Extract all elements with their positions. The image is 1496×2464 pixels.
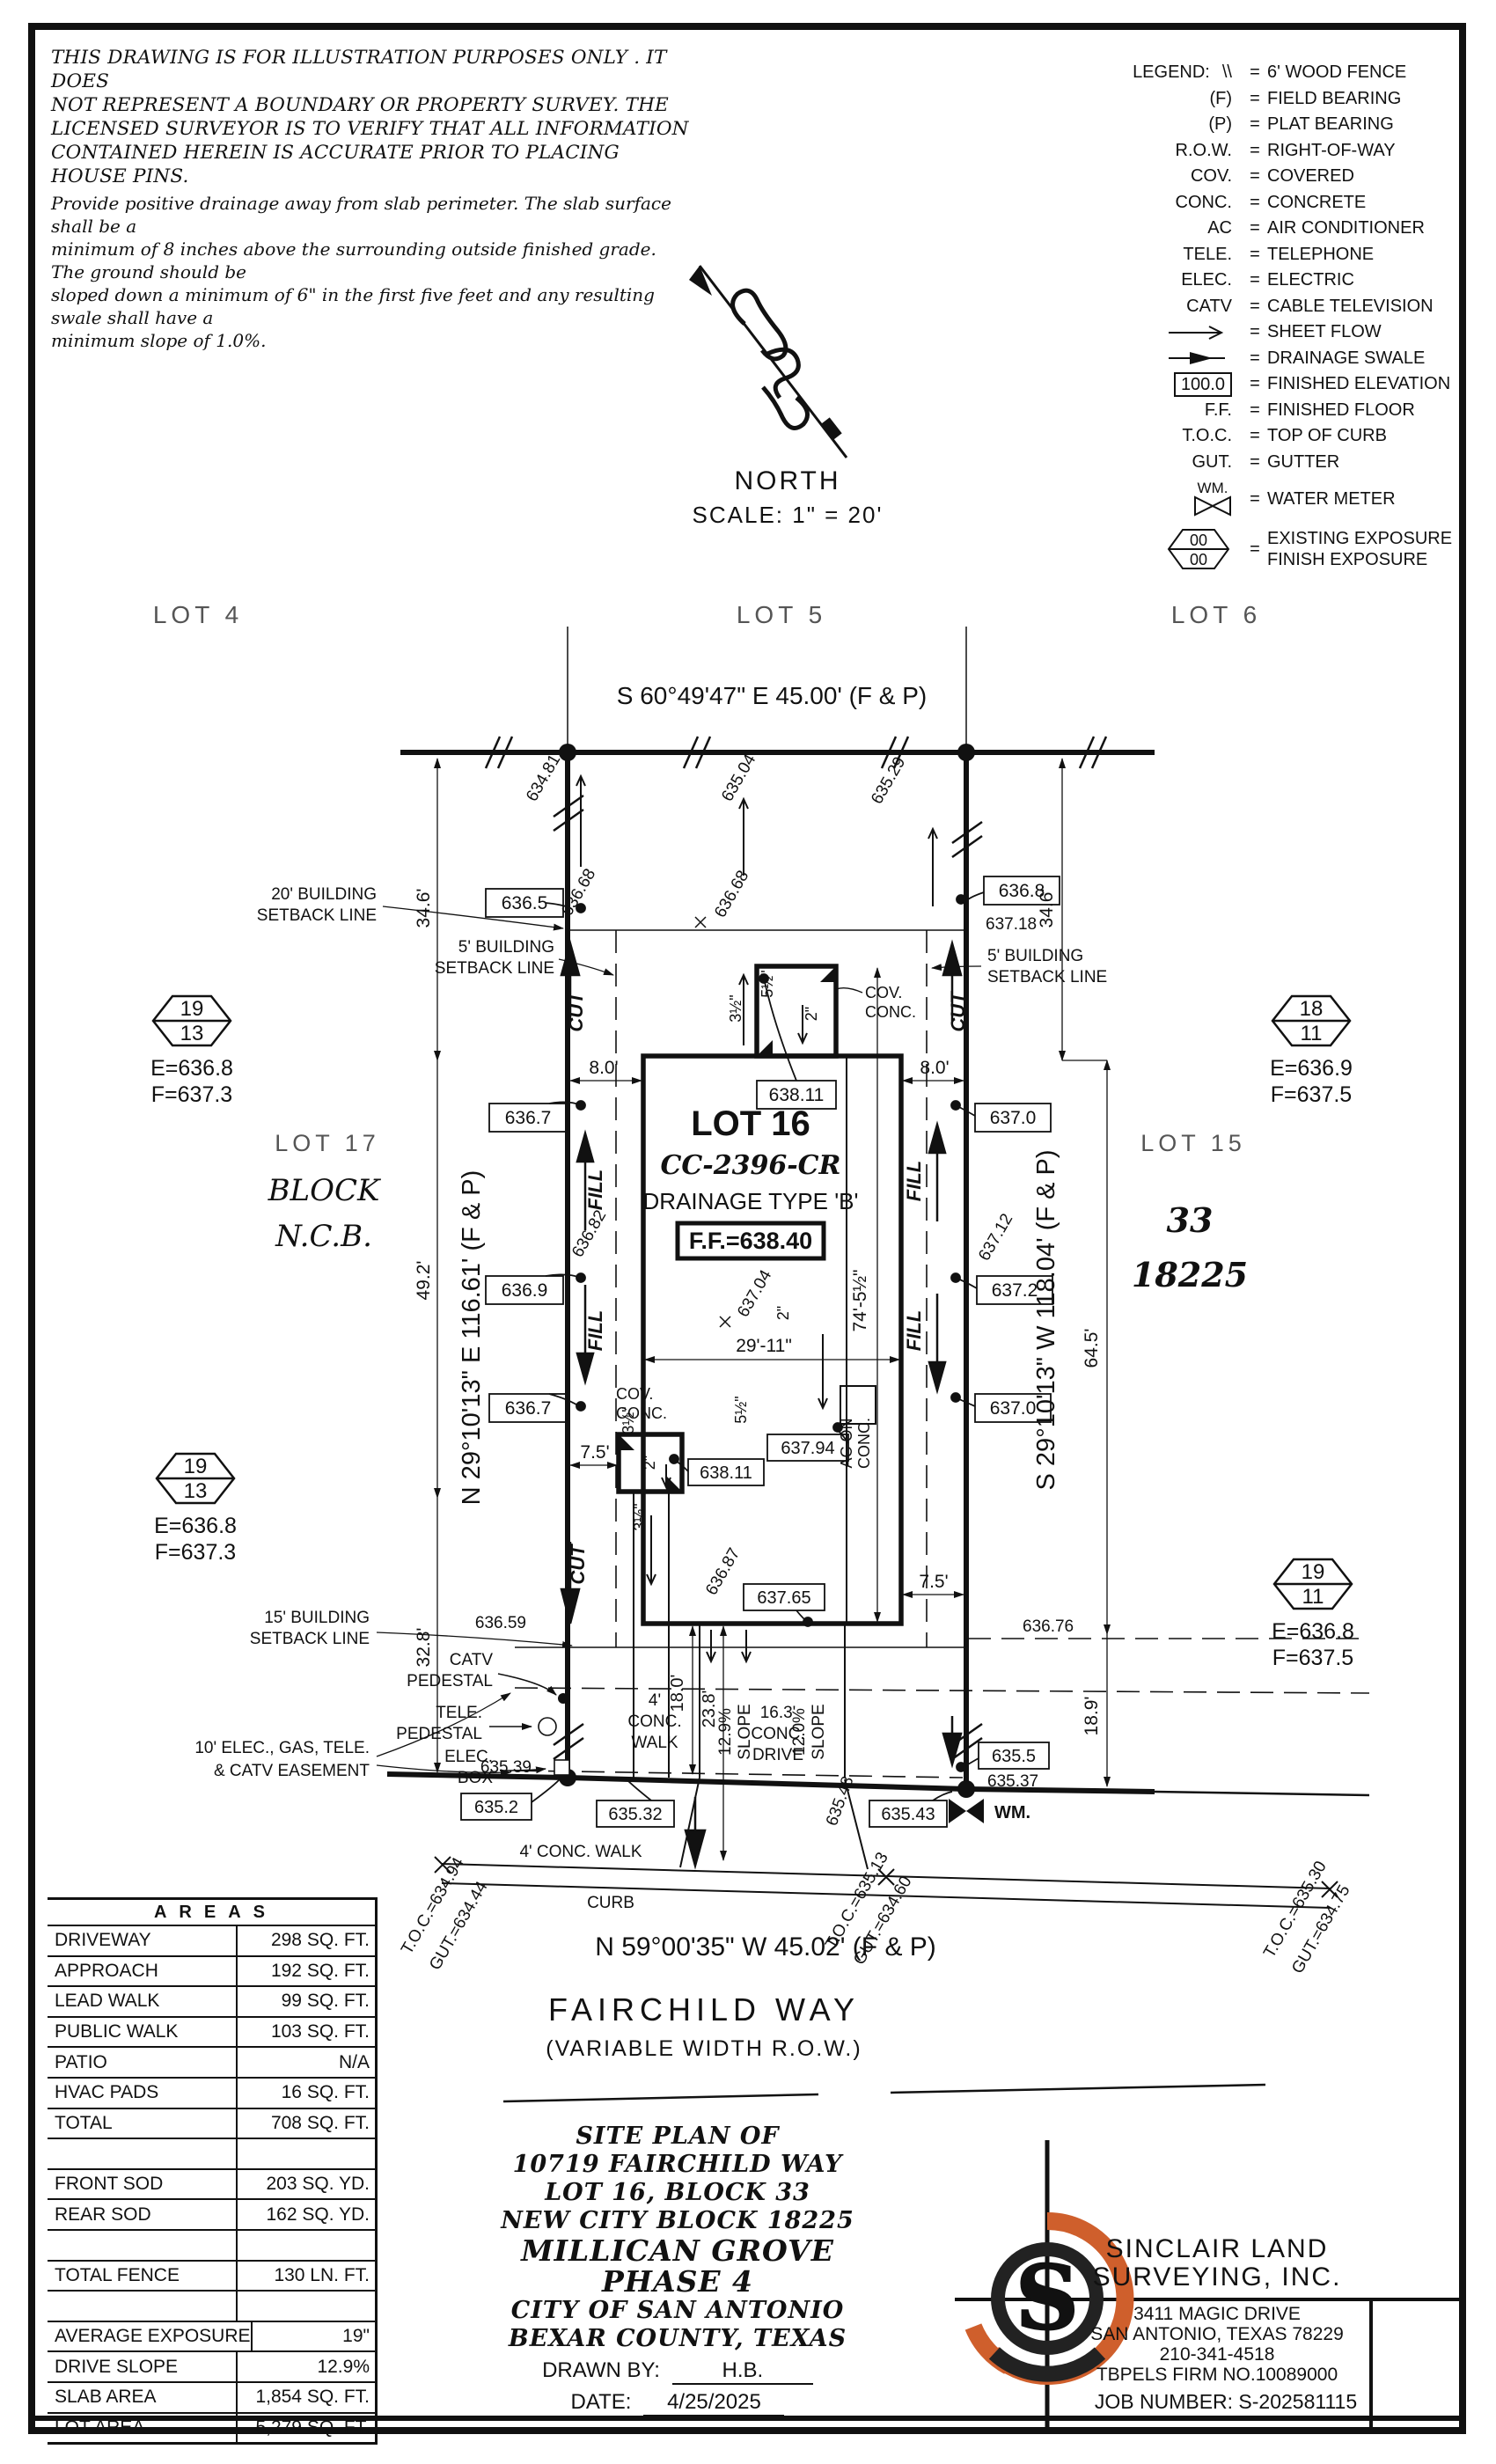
spot-box-635-5: 635.5: [992, 1747, 1036, 1766]
legend-symbol: ELEC.: [1116, 270, 1243, 290]
setback5-left-2: SETBACK LINE: [435, 959, 554, 978]
area-label: APPROACH: [48, 1961, 236, 1982]
equals: =: [1243, 374, 1267, 394]
exposure-nw-top: 19: [180, 997, 204, 1021]
porch-3half: 3½": [727, 994, 744, 1022]
area-value: 203 SQ. YD.: [236, 2170, 375, 2199]
dim-side-right-8: 8.0': [920, 1058, 949, 1078]
legend-desc: FINISH EXPOSURE: [1267, 549, 1464, 570]
slope-word-1: SLOPE: [736, 1704, 754, 1759]
drainage-swale-icon: [1167, 350, 1232, 366]
exposure-sw-f: F=637.3: [155, 1540, 236, 1565]
area-label: SLAB AREA: [48, 2387, 236, 2408]
dim-west-34-6: 34.6': [414, 889, 434, 928]
ff-elevation: F.F.=638.40: [689, 1228, 812, 1254]
area-value: 99 SQ. FT.: [236, 1987, 375, 2016]
legend-symbol: CATV: [1116, 297, 1243, 317]
company-address-2: SAN ANTONIO, TEXAS 78229: [1063, 2324, 1371, 2344]
area-label: DRIVEWAY: [48, 1930, 236, 1951]
equals: =: [1243, 452, 1267, 473]
legend-desc: AIR CONDITIONER: [1267, 218, 1464, 238]
wm-label: WM.: [994, 1803, 1030, 1822]
legend-desc: COVERED: [1267, 166, 1464, 187]
porch-5half: 5½": [759, 970, 776, 997]
area-value: 298 SQ. FT.: [236, 1926, 375, 1955]
legend-simple-rows-2: F.F.=FINISHED FLOORT.O.C.=TOP OF CURBGUT…: [1116, 398, 1464, 476]
areas-row: DRIVEWAY 298 SQ. FT.: [48, 1926, 375, 1957]
lot17-label: LOT 17: [275, 1130, 380, 1156]
legend-row: (F)=FIELD BEARING: [1116, 86, 1464, 113]
exposure-se-top: 19: [1302, 1560, 1325, 1584]
date-label: DATE:: [571, 2390, 632, 2416]
spot-635-04: 635.04: [718, 751, 759, 804]
legend-desc: WATER METER: [1267, 489, 1464, 510]
areas-row: DRIVE SLOPE 12.9%: [48, 2352, 375, 2383]
setback20-label-2: SETBACK LINE: [257, 906, 377, 925]
area-value: 19": [251, 2322, 375, 2351]
exposure-bottom-value: 00: [1190, 551, 1207, 568]
area-label: TOTAL FENCE: [48, 2265, 236, 2286]
exposure-ne-bottom: 11: [1301, 1022, 1323, 1045]
spot-636-76: 636.76: [1023, 1617, 1074, 1636]
spot-635-29: 635.29: [868, 754, 909, 808]
legend-row-sheet-flow: = SHEET FLOW: [1116, 319, 1464, 346]
easement-label-1: 10' ELEC., GAS, TELE.: [194, 1739, 370, 1757]
spot-637-12: 637.12: [975, 1211, 1016, 1265]
areas-row: APPROACH 192 SQ. FT.: [48, 1957, 375, 1988]
company-address-1: 3411 MAGIC DRIVE: [1063, 2304, 1371, 2324]
setback15-label-2: SETBACK LINE: [250, 1630, 370, 1648]
county: BEXAR COUNTY, TEXAS: [480, 2325, 876, 2353]
lot15-label: LOT 15: [1140, 1130, 1246, 1156]
legend-desc: FIELD BEARING: [1267, 89, 1464, 109]
equals: =: [1243, 193, 1267, 213]
scale-label: SCALE: 1" = 20': [693, 502, 884, 528]
lot16-label: LOT 16: [691, 1104, 810, 1143]
porch-2in: 2": [803, 1007, 820, 1021]
areas-row: FRONT SOD 203 SQ. YD.: [48, 2170, 375, 2201]
areas-row: PUBLIC WALK 103 SQ. FT.: [48, 2018, 375, 2049]
spot-box-637-2: 637.2: [992, 1280, 1038, 1301]
area-label: PUBLIC WALK: [48, 2021, 236, 2042]
lot6-label: LOT 6: [1171, 601, 1261, 628]
title-line: LOT 16, BLOCK 33: [480, 2179, 876, 2207]
legend-row: CATV=CABLE TELEVISION: [1116, 294, 1464, 320]
legend-desc: 6' WOOD FENCE: [1267, 62, 1464, 83]
public-walk-label: 4' CONC. WALK: [519, 1843, 642, 1861]
exposure-top-value: 00: [1190, 532, 1207, 549]
legend-row: (P)=PLAT BEARING: [1116, 112, 1464, 138]
legend: LEGEND:\\ = 6' WOOD FENCE (F)=FIELD BEAR…: [1116, 60, 1464, 576]
area-value: N/A: [236, 2048, 375, 2077]
company-name-2: SURVEYING, INC.: [1063, 2263, 1371, 2292]
title-block: SITE PLAN OF 10719 FAIRCHILD WAY LOT 16,…: [480, 2123, 876, 2416]
disclaimer-line: CONTAINED HEREIN IS ACCURATE PRIOR TO PL…: [51, 141, 693, 188]
equals: =: [1243, 348, 1267, 369]
spot-635-37: 635.37: [987, 1772, 1038, 1791]
legend-row: TELE.=TELEPHONE: [1116, 242, 1464, 268]
equals: =: [1243, 62, 1267, 83]
area-value: 162 SQ. YD.: [236, 2200, 375, 2229]
equals: =: [1243, 245, 1267, 265]
dim-side-left-8: 8.0': [589, 1058, 618, 1078]
legend-desc: FINISHED ELEVATION: [1267, 374, 1464, 394]
legend-desc: ELECTRIC: [1267, 270, 1464, 290]
bearing-east: S 29°10'13" W 118.04' (F & P): [1032, 1149, 1060, 1490]
leadwalk-conc: CONC.: [627, 1712, 681, 1731]
easement-label-2: & CATV EASEMENT: [214, 1762, 370, 1780]
areas-row: LOT AREA 5,279 SQ. FT.: [48, 2414, 375, 2443]
equals: =: [1243, 297, 1267, 317]
stoop-3half-bottom: 3½": [631, 1503, 649, 1530]
city: CITY OF SAN ANTONIO: [480, 2297, 876, 2325]
title-line: SITE PLAN OF: [480, 2123, 876, 2151]
title-line: NEW CITY BLOCK 18225: [480, 2207, 876, 2235]
equals: =: [1243, 270, 1267, 290]
disclaimer-note: THIS DRAWING IS FOR ILLUSTRATION PURPOSE…: [51, 46, 693, 352]
dim-right-7-5: 7.5': [919, 1572, 948, 1592]
north-arrow-icon: [689, 266, 847, 458]
legend-desc: SHEET FLOW: [1267, 322, 1464, 342]
spot-box-635-32: 635.32: [608, 1805, 662, 1824]
legend-symbol: F.F.: [1116, 400, 1243, 421]
spot-635-39: 635.39: [480, 1758, 532, 1777]
fill-label-right-up: FILL: [903, 1161, 925, 1201]
areas-row: HVAC PADS 16 SQ. FT.: [48, 2079, 375, 2109]
date-value: 4/25/2025: [643, 2390, 784, 2416]
area-value: 103 SQ. FT.: [236, 2018, 375, 2047]
tele-pedestal-2: PEDESTAL: [396, 1725, 482, 1743]
area-label: REAR SOD: [48, 2204, 236, 2226]
legend-symbol: TELE.: [1116, 245, 1243, 265]
areas-row: PATIO N/A: [48, 2048, 375, 2079]
block33-label: 33: [1167, 1200, 1214, 1240]
porch-cov-label: COV.: [865, 984, 902, 1001]
slope-word-2: SLOPE: [810, 1704, 828, 1759]
legend-row: F.F.=FINISHED FLOOR: [1116, 398, 1464, 424]
areas-row: TOTAL FENCE 130 LN. FT.: [48, 2262, 375, 2292]
equals: =: [1243, 89, 1267, 109]
equals: =: [1243, 114, 1267, 135]
spot-636-68b: 636.68: [711, 868, 752, 921]
disclaimer-line: NOT REPRESENT A BOUNDARY OR PROPERTY SUR…: [51, 93, 693, 117]
setback15-label-1: 15' BUILDING: [264, 1609, 370, 1627]
area-value: 708 SQ. FT.: [236, 2109, 375, 2138]
drainage-note-line: Provide positive drainage away from slab…: [51, 192, 693, 238]
lot16-cc-number: CC-2396-CR: [661, 1150, 841, 1181]
north-label: NORTH: [734, 466, 840, 495]
catv-pedestal-1: CATV: [450, 1651, 494, 1669]
legend-row: ELEC.=ELECTRIC: [1116, 268, 1464, 294]
ncb-label: N.C.B.: [275, 1219, 372, 1254]
drawn-by-label: DRAWN BY:: [542, 2358, 660, 2385]
water-meter-icon: [949, 1799, 984, 1823]
leadwalk-walk: WALK: [631, 1734, 678, 1752]
spot-636-59: 636.59: [475, 1614, 526, 1632]
legend-desc: FINISHED FLOOR: [1267, 400, 1464, 421]
equals: =: [1243, 141, 1267, 161]
exposure-nw-f: F=637.3: [151, 1082, 232, 1107]
legend-row: R.O.W.=RIGHT-OF-WAY: [1116, 138, 1464, 165]
dim-house-width: 29'-11": [736, 1336, 792, 1356]
leadwalk-4: 4': [649, 1691, 661, 1710]
areas-title: AREAS: [48, 1900, 375, 1926]
exposure-ne-top: 18: [1300, 997, 1324, 1021]
fill-label-left-up: FILL: [584, 1170, 606, 1210]
setback5-left-1: 5' BUILDING: [458, 938, 554, 957]
spot-636-82: 636.82: [568, 1207, 610, 1261]
wood-fence-symbol: \\: [1222, 62, 1232, 82]
legend-symbol: (P): [1116, 114, 1243, 135]
wm-symbol-label: WM.: [1193, 481, 1232, 495]
ncb18225-label: 18225: [1132, 1255, 1248, 1294]
curb-label: CURB: [587, 1894, 634, 1912]
equals: =: [1243, 166, 1267, 187]
street-row: (VARIABLE WIDTH R.O.W.): [546, 2036, 862, 2061]
areas-rows: DRIVEWAY 298 SQ. FT. APPROACH 192 SQ. FT…: [48, 1926, 375, 2442]
drainage-note-line: minimum of 8 inches above the surroundin…: [51, 238, 693, 283]
legend-symbol: CONC.: [1116, 193, 1243, 213]
spot-box-638-11b: 638.11: [700, 1463, 752, 1483]
spot-box-636-7a: 636.7: [505, 1108, 552, 1128]
area-label: PATIO: [48, 2052, 236, 2073]
job-number: JOB NUMBER: S-202581115: [1063, 2390, 1389, 2414]
legend-row-water-meter: WM. = WATER METER: [1116, 475, 1464, 523]
spot-box-637-0a: 637.0: [990, 1108, 1037, 1128]
area-value: [236, 2231, 375, 2260]
area-value: 16 SQ. FT.: [236, 2079, 375, 2108]
legend-desc: RIGHT-OF-WAY: [1267, 141, 1464, 161]
legend-desc: EXISTING EXPOSURE: [1267, 528, 1464, 549]
legend-symbol: GUT.: [1116, 452, 1243, 473]
area-label: HVAC PADS: [48, 2082, 236, 2103]
drainage-note-line: sloped down a minimum of 6" in the first…: [51, 283, 693, 329]
legend-row-finished-elevation: 100.0 = FINISHED ELEVATION: [1116, 371, 1464, 398]
legend-desc: PLAT BEARING: [1267, 114, 1464, 135]
spot-box-637-0b: 637.0: [990, 1398, 1037, 1419]
company-block: SINCLAIR LAND SURVEYING, INC. 3411 MAGIC…: [1063, 2235, 1415, 2414]
dim-east-64-5: 64.5': [1082, 1329, 1102, 1368]
bearing-south: N 59°00'35" W 45.02' (F & P): [595, 1932, 936, 1962]
drawn-by-value: H.B.: [672, 2358, 813, 2385]
dim-east-18-9: 18.9': [1082, 1697, 1102, 1736]
spot-box-636-7b: 636.7: [505, 1398, 552, 1419]
phase: PHASE 4: [480, 2266, 876, 2297]
spot-636-87: 636.87: [702, 1545, 744, 1599]
areas-row: SLAB AREA 1,854 SQ. FT.: [48, 2383, 375, 2414]
spot-634-81: 634.81: [523, 752, 564, 805]
equals: =: [1243, 489, 1267, 510]
cut-label-left: CUT: [565, 991, 587, 1032]
legend-row-fence: LEGEND:\\ = 6' WOOD FENCE: [1116, 60, 1464, 86]
stoop-cov-label: COV.: [616, 1385, 653, 1403]
area-value: 1,854 SQ. FT.: [236, 2383, 375, 2412]
area-label: FRONT SOD: [48, 2174, 236, 2195]
spot-box-637-65: 637.65: [757, 1588, 810, 1608]
drainage-type: DRAINAGE TYPE 'B': [643, 1188, 859, 1214]
area-value: 192 SQ. FT.: [236, 1957, 375, 1986]
areas-row: [48, 2292, 375, 2322]
equals: =: [1243, 218, 1267, 238]
areas-row: [48, 2231, 375, 2262]
area-label: AVERAGE EXPOSURE: [48, 2326, 251, 2347]
areas-table: AREAS DRIVEWAY 298 SQ. FT. APPROACH 192 …: [48, 1897, 378, 2445]
legend-row: T.O.C.=TOP OF CURB: [1116, 423, 1464, 450]
equals: =: [1243, 400, 1267, 421]
legend-symbol: AC: [1116, 218, 1243, 238]
dim-walk-18: 18.0': [668, 1675, 687, 1712]
exposure-nw-e: E=636.8: [150, 1056, 233, 1081]
spot-box-635-2: 635.2: [474, 1798, 518, 1817]
dim-stoop-7-5: 7.5': [580, 1442, 609, 1463]
spot-box-636-8: 636.8: [999, 881, 1045, 901]
spot-635-48: 635.48: [823, 1774, 858, 1829]
area-value: 130 LN. FT.: [236, 2262, 375, 2291]
dim-west-49-2: 49.2': [414, 1261, 434, 1301]
disclaimer-line: THIS DRAWING IS FOR ILLUSTRATION PURPOSE…: [51, 46, 693, 93]
spot-box-638-11a: 638.11: [769, 1085, 825, 1105]
fill-label-right-down: FILL: [903, 1310, 925, 1351]
stoop-3half-top: 3½": [620, 1406, 637, 1434]
finished-elevation-symbol: 100.0: [1174, 372, 1232, 397]
exposure-nw-bottom: 13: [180, 1022, 204, 1045]
cut-label-bottom: CUT: [567, 1544, 589, 1585]
area-label: DRIVE SLOPE: [48, 2357, 236, 2378]
area-value: [236, 2292, 375, 2321]
equals: =: [1243, 539, 1267, 560]
exposure-hex-icon: 00 00: [1165, 523, 1232, 576]
fill-label-left-down: FILL: [584, 1310, 606, 1351]
areas-row: LEAD WALK 99 SQ. FT.: [48, 1987, 375, 2018]
legend-simple-rows: (F)=FIELD BEARING(P)=PLAT BEARINGR.O.W.=…: [1116, 86, 1464, 320]
dim-west-32-8: 32.8': [414, 1628, 434, 1668]
legend-desc: CABLE TELEVISION: [1267, 297, 1464, 317]
setback5-right-2: SETBACK LINE: [987, 968, 1107, 986]
exposure-se-bottom: 11: [1302, 1585, 1324, 1609]
exposure-se-f: F=637.5: [1272, 1646, 1353, 1670]
stoop-2in: 2": [641, 1456, 658, 1470]
legend-symbol: T.O.C.: [1116, 426, 1243, 446]
slope-12-0: 12.0%: [790, 1708, 809, 1756]
legend-row: CONC.=CONCRETE: [1116, 190, 1464, 216]
area-value: [236, 2139, 375, 2168]
legend-desc: CONCRETE: [1267, 193, 1464, 213]
title-line: 10719 FAIRCHILD WAY: [480, 2151, 876, 2179]
company-phone: 210-341-4518: [1063, 2344, 1371, 2365]
legend-symbol: R.O.W.: [1116, 141, 1243, 161]
area-label: TOTAL: [48, 2113, 236, 2134]
lot4-label: LOT 4: [153, 601, 243, 628]
areas-row: [48, 2139, 375, 2170]
areas-row: REAR SOD 162 SQ. YD.: [48, 2200, 375, 2231]
porch-conc-label: CONC.: [865, 1003, 916, 1021]
exposure-se-e: E=636.8: [1272, 1619, 1354, 1644]
spot-637-04: 637.04: [734, 1266, 775, 1320]
block-label: BLOCK: [268, 1173, 382, 1208]
cut-label-right: CUT: [947, 991, 969, 1032]
spot-box-635-43: 635.43: [881, 1805, 935, 1824]
subdivision-name: MILLICAN GROVE: [480, 2235, 876, 2266]
water-meter-icon: [1193, 495, 1232, 517]
area-value: 12.9%: [236, 2352, 375, 2381]
slope-12-9: 12.9%: [716, 1708, 735, 1756]
area-value: 5,279 SQ. FT.: [236, 2414, 375, 2443]
legend-row: COV.=COVERED: [1116, 164, 1464, 190]
stoop-5half: 5½": [732, 1396, 750, 1423]
survey-sheet: NORTH SCALE: 1" = 20' LOT 4 LOT 5 LOT 6 …: [0, 0, 1496, 2464]
spot-637-18: 637.18: [986, 915, 1037, 934]
bearing-west: N 29°10'13" E 116.61' (F & P): [458, 1170, 486, 1506]
exposure-ne-e: E=636.9: [1270, 1056, 1353, 1081]
interior-2in: 2": [774, 1306, 792, 1320]
spot-box-636-9: 636.9: [502, 1280, 548, 1301]
legend-desc: TOP OF CURB: [1267, 426, 1464, 446]
equals: =: [1243, 322, 1267, 342]
catv-pedestal-2: PEDESTAL: [407, 1672, 493, 1690]
legend-symbol: (F): [1116, 89, 1243, 109]
exposure-sw-e: E=636.8: [154, 1514, 237, 1538]
exposure-ne-f: F=637.5: [1271, 1082, 1352, 1107]
dim-house-depth: 74'-5½": [850, 1269, 870, 1331]
company-name-1: SINCLAIR LAND: [1063, 2235, 1371, 2263]
setback5-right-1: 5' BUILDING: [987, 947, 1083, 965]
legend-row: AC=AIR CONDITIONER: [1116, 216, 1464, 242]
setback20-label-1: 20' BUILDING: [271, 885, 377, 904]
drainage-note-line: minimum slope of 1.0%.: [51, 329, 693, 352]
legend-title: LEGEND:: [1133, 62, 1210, 82]
legend-desc: DRAINAGE SWALE: [1267, 348, 1464, 369]
ac-conc-label: CONC.: [855, 1418, 873, 1469]
exposure-sw-top: 19: [184, 1455, 208, 1478]
area-label: LEAD WALK: [48, 1991, 236, 2012]
legend-desc: GUTTER: [1267, 452, 1464, 473]
street-name: FAIRCHILD WAY: [548, 1991, 860, 2028]
exposure-sw-bottom: 13: [184, 1479, 208, 1503]
legend-symbol: COV.: [1116, 166, 1243, 187]
spot-box-637-94: 637.94: [781, 1439, 834, 1458]
equals: =: [1243, 426, 1267, 446]
tele-pedestal-1: TELE.: [436, 1704, 482, 1722]
legend-row-exposure: 00 00 = EXISTING EXPOSURE FINISH EXPOSUR…: [1116, 523, 1464, 576]
areas-row: TOTAL 708 SQ. FT.: [48, 2109, 375, 2140]
company-firm-number: TBPELS FIRM NO.10089000: [1063, 2365, 1371, 2385]
ac-on-label: AC ON: [838, 1418, 855, 1468]
spot-box-636-5: 636.5: [502, 893, 548, 913]
legend-desc: TELEPHONE: [1267, 245, 1464, 265]
lot5-label: LOT 5: [737, 601, 826, 628]
bearing-north: S 60°49'47" E 45.00' (F & P): [617, 682, 927, 709]
disclaimer-line: LICENSED SURVEYOR IS TO VERIFY THAT ALL …: [51, 117, 693, 141]
legend-row: GUT.=GUTTER: [1116, 450, 1464, 476]
sheet-flow-icon: [1167, 325, 1232, 341]
legend-row-drainage-swale: = DRAINAGE SWALE: [1116, 346, 1464, 372]
area-label: LOT AREA: [48, 2417, 236, 2438]
areas-row: AVERAGE EXPOSURE 19": [48, 2322, 375, 2353]
